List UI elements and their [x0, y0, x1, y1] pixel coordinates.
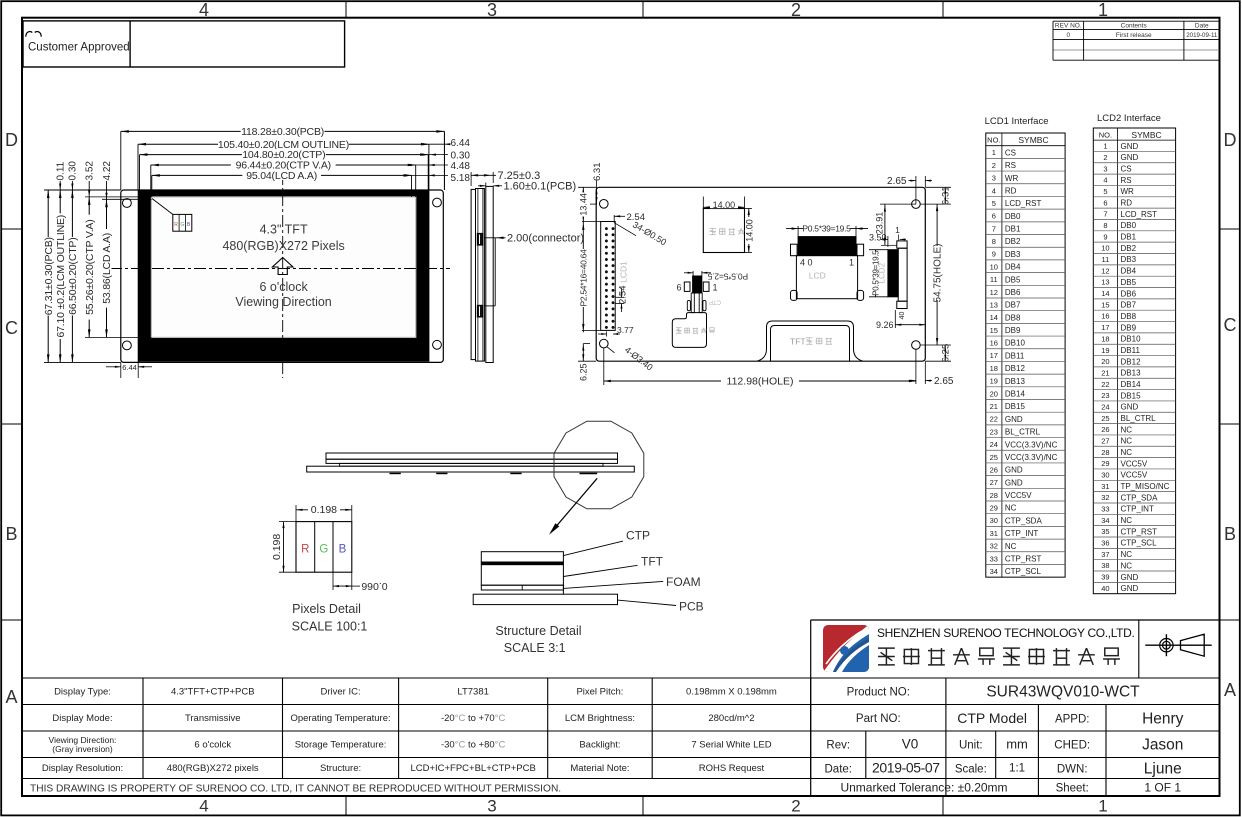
svg-text:ROHS Request: ROHS Request	[699, 763, 765, 774]
svg-text:LCD+IC+FPC+BL+CTP+PCB: LCD+IC+FPC+BL+CTP+PCB	[410, 763, 535, 774]
svg-text:VCC5V: VCC5V	[1121, 471, 1148, 480]
svg-text:B: B	[1224, 524, 1236, 544]
svg-text:12: 12	[990, 288, 998, 297]
svg-text:0.198mm X 0.198mm: 0.198mm X 0.198mm	[686, 686, 777, 697]
svg-text:P2.54*16=40.64: P2.54*16=40.64	[579, 249, 589, 307]
svg-text:1.60±0.1(PCB): 1.60±0.1(PCB)	[504, 180, 577, 192]
svg-text:4.3" TFT: 4.3" TFT	[260, 223, 308, 237]
svg-text:2.65: 2.65	[887, 176, 907, 187]
svg-text:6.44: 6.44	[451, 138, 471, 149]
svg-text:B: B	[5, 524, 17, 544]
svg-text:4: 4	[1103, 176, 1107, 185]
svg-text:34: 34	[990, 567, 998, 576]
svg-text:2.54: 2.54	[618, 286, 629, 305]
svg-text:21: 21	[990, 402, 998, 411]
svg-text:4.22: 4.22	[102, 161, 113, 181]
svg-text:LT7381: LT7381	[457, 686, 489, 697]
svg-text:3.52: 3.52	[85, 161, 96, 181]
svg-text:3.77: 3.77	[617, 325, 634, 335]
svg-text:Operating Temperature:: Operating Temperature:	[290, 713, 390, 724]
svg-text:11: 11	[1102, 255, 1110, 264]
svg-text:D: D	[5, 130, 18, 150]
svg-text:GND: GND	[1121, 403, 1139, 412]
svg-text:DB11: DB11	[1121, 346, 1141, 355]
svg-text:GND: GND	[1121, 584, 1139, 593]
svg-text:LCD_RST: LCD_RST	[1005, 199, 1042, 208]
svg-text:DB7: DB7	[1121, 301, 1137, 310]
svg-text:DB13: DB13	[1121, 369, 1142, 378]
svg-text:DB2: DB2	[1005, 237, 1021, 246]
svg-text:LCD_RST: LCD_RST	[1121, 210, 1158, 219]
svg-text:2.00(connector): 2.00(connector)	[507, 232, 584, 244]
svg-text:Display Mode:: Display Mode:	[52, 713, 112, 724]
svg-text:13.44: 13.44	[579, 193, 589, 216]
svg-text:mm: mm	[1006, 737, 1028, 752]
svg-text:24: 24	[990, 440, 998, 449]
svg-text:BL_CTRL: BL_CTRL	[1121, 414, 1157, 423]
svg-text:7: 7	[1103, 210, 1107, 219]
svg-text:B: B	[339, 543, 347, 555]
svg-text:4: 4	[992, 186, 996, 195]
svg-text:0.30: 0.30	[451, 151, 471, 162]
svg-text:Storage Temperature:: Storage Temperature:	[295, 739, 387, 750]
svg-text:FOAM: FOAM	[666, 575, 701, 589]
svg-text:P0.5*5=2.5: P0.5*5=2.5	[707, 272, 748, 282]
svg-text:GND: GND	[1121, 142, 1139, 151]
svg-text:Driver IC:: Driver IC:	[320, 686, 360, 697]
svg-text:67.31±0.30(PCB): 67.31±0.30(PCB)	[43, 237, 55, 315]
svg-text:7: 7	[992, 224, 996, 233]
svg-text:6.44: 6.44	[122, 363, 137, 372]
svg-text:Jason: Jason	[1142, 737, 1183, 754]
svg-text:17: 17	[1101, 323, 1109, 332]
svg-text:16: 16	[1101, 312, 1109, 321]
svg-text:5: 5	[992, 199, 996, 208]
svg-text:Sheet:: Sheet:	[1056, 783, 1089, 795]
svg-text:CTP_SCL: CTP_SCL	[1005, 567, 1042, 576]
svg-text:26: 26	[1101, 425, 1109, 434]
svg-text:14: 14	[990, 313, 998, 322]
svg-text:30: 30	[1101, 471, 1109, 480]
svg-text:12: 12	[1101, 266, 1109, 275]
svg-text:APPD:: APPD:	[1055, 714, 1090, 726]
svg-text:28: 28	[1101, 448, 1109, 457]
svg-text:DB0: DB0	[1121, 221, 1137, 230]
svg-text:TFT: TFT	[790, 337, 806, 347]
svg-text:23.91: 23.91	[874, 212, 884, 235]
svg-text:34: 34	[1101, 516, 1109, 525]
svg-text:25: 25	[990, 453, 998, 462]
svg-text:2019-05-07: 2019-05-07	[872, 760, 940, 776]
svg-text:19: 19	[990, 377, 998, 386]
svg-text:1: 1	[895, 225, 900, 235]
svg-text:LCD: LCD	[809, 271, 826, 281]
svg-text:Pixel Pitch:: Pixel Pitch:	[576, 686, 623, 697]
svg-text:Transmissive: Transmissive	[185, 713, 241, 724]
svg-text:C: C	[1224, 315, 1237, 335]
svg-text:32: 32	[990, 542, 998, 551]
svg-text:NC: NC	[1005, 504, 1017, 513]
svg-text:BL_CTRL: BL_CTRL	[1005, 428, 1041, 437]
svg-text:RS: RS	[1121, 176, 1132, 185]
svg-text:1 OF 1: 1 OF 1	[1144, 781, 1181, 795]
svg-text:1:1: 1:1	[1009, 763, 1025, 775]
svg-text:DB5: DB5	[1005, 275, 1021, 284]
svg-text:10: 10	[1101, 244, 1109, 253]
svg-text:480(RGB)X272 Pixels: 480(RGB)X272 Pixels	[222, 239, 344, 253]
svg-text:4: 4	[199, 797, 208, 816]
svg-text:3: 3	[487, 797, 496, 816]
svg-text:CTP_SDA: CTP_SDA	[1121, 493, 1159, 502]
svg-text:13: 13	[1101, 278, 1109, 287]
svg-text:2019-09-11: 2019-09-11	[1186, 32, 1218, 39]
svg-text:Part NO:: Part NO:	[856, 713, 901, 725]
svg-text:DB15: DB15	[1121, 391, 1142, 400]
svg-text:23: 23	[1101, 391, 1109, 400]
svg-text:30: 30	[990, 516, 998, 525]
svg-text:Ljune: Ljune	[1144, 761, 1182, 778]
svg-text:20: 20	[990, 389, 998, 398]
svg-text:22: 22	[1101, 380, 1109, 389]
svg-text:Unmarked Tolerance: ±0.20mm: Unmarked Tolerance: ±0.20mm	[840, 781, 1007, 795]
svg-text:2: 2	[791, 797, 800, 816]
svg-text:DB12: DB12	[1121, 357, 1142, 366]
svg-text:1: 1	[1098, 0, 1108, 20]
svg-text:1: 1	[1098, 797, 1107, 816]
svg-text:DB6: DB6	[1005, 288, 1021, 297]
svg-text:Unit:: Unit:	[959, 740, 983, 752]
svg-text:4.3"TFT+CTP+PCB: 4.3"TFT+CTP+PCB	[171, 686, 255, 697]
svg-text:6: 6	[992, 212, 996, 221]
svg-text:4: 4	[199, 0, 209, 20]
svg-text:26: 26	[990, 465, 998, 474]
svg-text:Henry: Henry	[1142, 711, 1184, 728]
svg-text:CTP_SDA: CTP_SDA	[1005, 516, 1043, 525]
svg-text:118.28±0.30(PCB): 118.28±0.30(PCB)	[241, 126, 324, 138]
svg-text:1: 1	[1103, 142, 1107, 151]
svg-text:NC: NC	[1121, 550, 1133, 559]
svg-text:REV NO.: REV NO.	[1055, 22, 1082, 29]
svg-text:6 o'colck: 6 o'colck	[194, 739, 231, 750]
svg-text:Display Type:: Display Type:	[54, 686, 111, 697]
svg-text:GND: GND	[1005, 466, 1023, 475]
svg-text:0.198: 0.198	[311, 504, 337, 516]
svg-text:14.00: 14.00	[713, 200, 736, 210]
svg-text:35: 35	[1101, 527, 1109, 536]
svg-text:R: R	[301, 543, 309, 555]
svg-text:2: 2	[992, 161, 996, 170]
svg-text:5.18: 5.18	[451, 173, 471, 184]
svg-text:Structure:: Structure:	[320, 763, 361, 774]
svg-text:2: 2	[1103, 153, 1107, 162]
svg-text:9: 9	[1103, 232, 1107, 241]
svg-text:WR: WR	[1121, 187, 1135, 196]
svg-text:LCD2: LCD2	[878, 262, 887, 283]
svg-text:2: 2	[791, 0, 801, 20]
svg-text:R: R	[174, 222, 178, 228]
svg-text:DB10: DB10	[1121, 335, 1142, 344]
svg-text:10: 10	[990, 262, 998, 271]
svg-text:G: G	[319, 543, 328, 555]
svg-text:9: 9	[992, 250, 996, 259]
svg-text:VCC(3.3V)/NC: VCC(3.3V)/NC	[1005, 440, 1058, 449]
svg-text:Scale:: Scale:	[955, 764, 987, 776]
svg-text:6.31: 6.31	[941, 186, 952, 205]
svg-text:18: 18	[1101, 334, 1109, 343]
svg-text:DB11: DB11	[1005, 351, 1025, 360]
svg-text:RS: RS	[1005, 161, 1016, 170]
svg-text:95.04(LCD A.A): 95.04(LCD A.A)	[246, 170, 317, 182]
svg-text:DB1: DB1	[1005, 225, 1021, 234]
svg-text:20: 20	[1101, 357, 1109, 366]
svg-text:DB13: DB13	[1005, 377, 1026, 386]
svg-text:GND: GND	[1121, 573, 1139, 582]
svg-text:32: 32	[1101, 493, 1109, 502]
svg-text:4 0: 4 0	[800, 258, 813, 268]
svg-text:29: 29	[1101, 459, 1109, 468]
svg-text:THIS DRAWING IS PROPERTY OF SU: THIS DRAWING IS PROPERTY OF SURENOO CO. …	[30, 784, 561, 795]
svg-text:0.066: 0.066	[361, 580, 387, 592]
svg-text:NO.: NO.	[1099, 130, 1112, 139]
svg-text:1: 1	[992, 148, 996, 157]
svg-text:Pixels Detail: Pixels Detail	[292, 602, 361, 616]
svg-text:1: 1	[713, 283, 718, 293]
svg-text:39: 39	[1101, 573, 1109, 582]
svg-text:CTP_INT: CTP_INT	[1005, 529, 1038, 538]
svg-text:13: 13	[990, 300, 998, 309]
svg-text:8: 8	[1103, 221, 1107, 230]
svg-text:6: 6	[676, 283, 681, 293]
svg-text:29: 29	[990, 504, 998, 513]
svg-text:DB9: DB9	[1121, 323, 1137, 332]
svg-text:CTP Model: CTP Model	[957, 710, 1027, 726]
svg-text:NC: NC	[1005, 542, 1017, 551]
svg-text:Material Note:: Material Note:	[570, 763, 629, 774]
svg-text:DB14: DB14	[1005, 390, 1026, 399]
svg-text:28: 28	[990, 491, 998, 500]
svg-text:DB12: DB12	[1005, 364, 1026, 373]
svg-text:V0: V0	[902, 737, 919, 752]
svg-text:VCC5V: VCC5V	[1121, 459, 1148, 468]
svg-text:-30°C to +80°C: -30°C to +80°C	[441, 739, 506, 750]
svg-text:CS: CS	[1121, 165, 1132, 174]
svg-text:TFT: TFT	[641, 555, 664, 569]
svg-text:27: 27	[1101, 436, 1109, 445]
svg-text:40: 40	[1101, 584, 1109, 593]
svg-text:-20°C to +70°C: -20°C to +70°C	[441, 713, 506, 724]
svg-text:0.30: 0.30	[68, 161, 79, 181]
svg-text:14.00: 14.00	[744, 219, 754, 242]
svg-text:38: 38	[1101, 561, 1109, 570]
svg-text:DB14: DB14	[1121, 380, 1142, 389]
svg-text:280cd/m^2: 280cd/m^2	[708, 713, 754, 724]
svg-text:First release: First release	[1116, 32, 1152, 39]
svg-text:NO.: NO.	[987, 135, 1000, 144]
svg-text:Backlight:: Backlight:	[579, 739, 620, 750]
svg-text:53.86(LCD A.A): 53.86(LCD A.A)	[101, 233, 113, 304]
svg-text:3: 3	[1103, 164, 1107, 173]
svg-text:15: 15	[990, 326, 998, 335]
svg-text:36: 36	[1101, 539, 1109, 548]
svg-text:0.11: 0.11	[56, 161, 67, 180]
svg-text:RD: RD	[1005, 186, 1017, 195]
svg-text:DB7: DB7	[1005, 301, 1021, 310]
svg-text:LCM Brightness:: LCM Brightness:	[565, 713, 635, 724]
svg-text:C: C	[5, 318, 18, 338]
svg-text:VCC(3.3V)/NC: VCC(3.3V)/NC	[1005, 453, 1058, 462]
svg-text:8: 8	[992, 237, 996, 246]
svg-text:16: 16	[990, 339, 998, 348]
svg-text:SUR43WQV010-WCT: SUR43WQV010-WCT	[986, 684, 1140, 701]
svg-text:CHED:: CHED:	[1054, 740, 1090, 752]
svg-text:DB9: DB9	[1005, 326, 1021, 335]
svg-text:DB4: DB4	[1121, 267, 1137, 276]
svg-text:3: 3	[487, 0, 497, 20]
svg-text:CTP_RST: CTP_RST	[1121, 527, 1158, 536]
svg-text:SYMBC: SYMBC	[1018, 135, 1048, 145]
svg-text:TP_MISO/NC: TP_MISO/NC	[1121, 482, 1170, 491]
svg-text:6.25: 6.25	[941, 344, 952, 363]
svg-text:11: 11	[990, 275, 998, 284]
svg-text:40: 40	[899, 312, 906, 320]
svg-text:NC: NC	[1121, 437, 1133, 446]
svg-text:P0.5*39=19.5: P0.5*39=19.5	[802, 224, 851, 234]
svg-text:CTP: CTP	[709, 299, 721, 305]
svg-text:24: 24	[1101, 402, 1109, 411]
svg-text:RD: RD	[1121, 199, 1133, 208]
svg-text:SHENZHEN SURENOO TECHNOLOGY CO: SHENZHEN SURENOO TECHNOLOGY CO.,LTD.	[877, 626, 1134, 640]
svg-text:480(RGB)X272 pixels: 480(RGB)X272 pixels	[167, 763, 259, 774]
svg-text:9.26: 9.26	[876, 320, 894, 330]
svg-text:Date:: Date:	[825, 764, 853, 776]
svg-text:Viewing Direction: Viewing Direction	[235, 295, 331, 309]
svg-text:GND: GND	[1005, 478, 1023, 487]
svg-text:DB6: DB6	[1121, 289, 1137, 298]
svg-text:54.75(HOLE): 54.75(HOLE)	[932, 244, 943, 303]
svg-text:Customer Approved: Customer Approved	[28, 42, 130, 54]
svg-text:A: A	[1224, 680, 1236, 700]
svg-text:GND: GND	[1005, 415, 1023, 424]
svg-text:A: A	[5, 687, 17, 707]
svg-text:CTP_INT: CTP_INT	[1121, 505, 1154, 514]
svg-text:67.10 ±0.2(LCM OUTLINE): 67.10 ±0.2(LCM OUTLINE)	[55, 215, 67, 338]
svg-text:(Gray inversion): (Gray inversion)	[52, 744, 113, 754]
svg-text:14: 14	[1101, 289, 1109, 298]
svg-text:CTP_RST: CTP_RST	[1005, 554, 1042, 563]
svg-text:3: 3	[992, 174, 996, 183]
svg-text:19: 19	[1101, 346, 1109, 355]
svg-text:SYMBC: SYMBC	[1131, 130, 1161, 140]
svg-text:DB4: DB4	[1005, 263, 1021, 272]
svg-text:Contents: Contents	[1121, 22, 1148, 29]
svg-text:21: 21	[1101, 368, 1109, 377]
svg-text:DB3: DB3	[1005, 250, 1021, 259]
svg-text:1: 1	[849, 258, 854, 268]
svg-text:CTP: CTP	[626, 529, 650, 543]
svg-text:37: 37	[1101, 550, 1109, 559]
svg-text:22: 22	[990, 415, 998, 424]
svg-text:15: 15	[1101, 300, 1109, 309]
svg-text:Display Resolution:: Display Resolution:	[42, 763, 123, 774]
svg-text:4.48: 4.48	[451, 161, 471, 172]
svg-text:6: 6	[1103, 198, 1107, 207]
svg-text:VCC5V: VCC5V	[1005, 491, 1032, 500]
svg-text:DB5: DB5	[1121, 278, 1137, 287]
svg-text:DB3: DB3	[1121, 255, 1137, 264]
svg-text:6 o'clock: 6 o'clock	[259, 280, 308, 294]
svg-text:PCB: PCB	[679, 600, 704, 614]
svg-text:LCD1: LCD1	[619, 261, 629, 283]
svg-text:0.198: 0.198	[271, 534, 283, 560]
svg-text:DB0: DB0	[1005, 212, 1021, 221]
svg-text:Product NO:: Product NO:	[847, 687, 910, 699]
svg-text:DB8: DB8	[1005, 313, 1021, 322]
svg-text:DB15: DB15	[1005, 402, 1026, 411]
svg-text:WR: WR	[1005, 174, 1019, 183]
svg-text:NC: NC	[1121, 448, 1133, 457]
svg-text:27: 27	[990, 478, 998, 487]
svg-text:25: 25	[1101, 414, 1109, 423]
svg-text:DB1: DB1	[1121, 233, 1137, 242]
svg-text:0: 0	[1066, 32, 1070, 39]
svg-text:31: 31	[990, 529, 998, 538]
svg-text:Structure Detail: Structure Detail	[495, 624, 581, 638]
svg-text:G: G	[180, 222, 184, 228]
svg-text:Date: Date	[1195, 22, 1209, 29]
svg-text:6.31: 6.31	[592, 163, 603, 182]
svg-text:55.26±0.20(CTP V.A): 55.26±0.20(CTP V.A)	[84, 219, 96, 314]
svg-text:SCALE 100:1: SCALE 100:1	[292, 620, 368, 634]
svg-text:CS: CS	[1005, 148, 1016, 157]
svg-text:SCALE 3:1: SCALE 3:1	[504, 641, 566, 655]
svg-text:NC: NC	[1121, 425, 1133, 434]
svg-text:31: 31	[1101, 482, 1109, 491]
svg-text:D: D	[1224, 130, 1237, 150]
svg-text:GND: GND	[1121, 153, 1139, 162]
svg-text:6.25: 6.25	[579, 364, 589, 382]
svg-text:NC: NC	[1121, 561, 1133, 570]
svg-text:66.50±0.20(CTP): 66.50±0.20(CTP)	[67, 237, 79, 314]
svg-text:CTP_SCL: CTP_SCL	[1121, 539, 1158, 548]
svg-text:LCD1 Interface: LCD1 Interface	[985, 116, 1049, 127]
svg-text:DB10: DB10	[1005, 339, 1026, 348]
svg-text:23: 23	[990, 427, 998, 436]
svg-text:33: 33	[990, 554, 998, 563]
svg-text:NC: NC	[1121, 516, 1133, 525]
svg-text:DB8: DB8	[1121, 312, 1137, 321]
svg-text:Rev:: Rev:	[826, 740, 850, 752]
svg-text:7 Serial White LED: 7 Serial White LED	[691, 739, 771, 750]
svg-text:DWN:: DWN:	[1057, 764, 1088, 776]
svg-text:2.65: 2.65	[934, 376, 954, 387]
svg-text:33: 33	[1101, 505, 1109, 514]
svg-text:112.98(HOLE): 112.98(HOLE)	[727, 376, 794, 388]
svg-text:5: 5	[1103, 187, 1107, 196]
svg-text:LCD2 Interface: LCD2 Interface	[1097, 113, 1161, 124]
svg-text:18: 18	[990, 364, 998, 373]
svg-text:17: 17	[990, 351, 998, 360]
svg-text:DB2: DB2	[1121, 244, 1137, 253]
